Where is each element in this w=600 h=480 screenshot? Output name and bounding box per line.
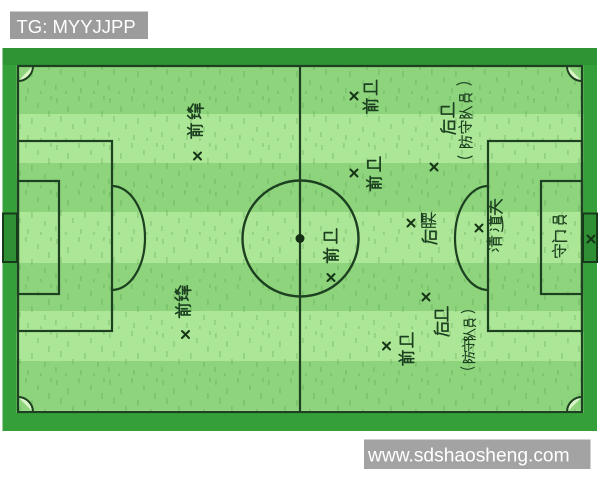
svg-text:www.sdshaosheng.com: www.sdshaosheng.com: [367, 446, 570, 467]
svg-text:TG: MYYJJPP: TG: MYYJJPP: [17, 16, 136, 37]
